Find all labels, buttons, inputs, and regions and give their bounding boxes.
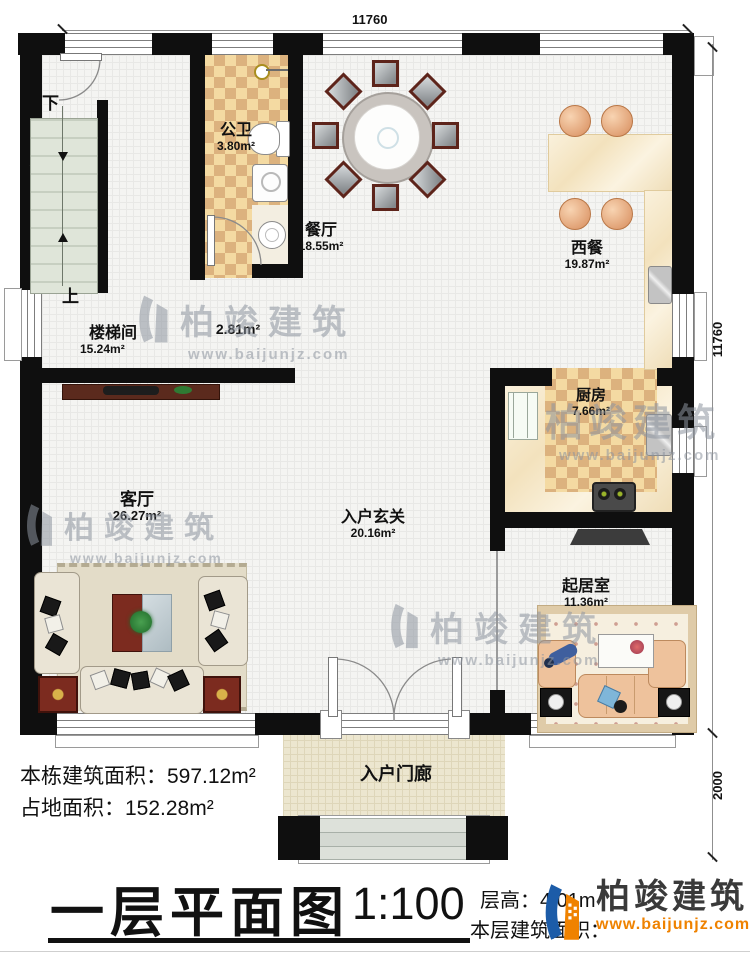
pedestal-sink-basin xyxy=(265,228,279,242)
side-table xyxy=(38,676,78,713)
stair-arrow-up xyxy=(58,228,68,242)
lamp xyxy=(548,694,564,710)
flower-decor xyxy=(630,640,644,654)
dining-chair xyxy=(312,122,339,149)
kitchen-cabinet-line xyxy=(527,392,528,438)
watermark-text: 柏竣建筑 xyxy=(430,602,606,651)
washing-machine-drum xyxy=(261,172,281,192)
cushion xyxy=(131,671,151,691)
plan-scale: 1:100 xyxy=(352,878,465,930)
sitting-coffee-table xyxy=(598,634,654,668)
bar-stool xyxy=(601,198,633,230)
room-area: 18.55m² xyxy=(288,240,354,253)
room-name: 公卫 xyxy=(205,122,267,140)
room-name: 起居室 xyxy=(550,578,622,596)
watermark-text: 柏竣建筑 xyxy=(180,295,356,344)
watermark-url: www.baijunjz.com xyxy=(438,652,606,669)
room-name: 西餐 xyxy=(556,240,618,258)
watermark: 柏竣建筑 www.baijunjz.com xyxy=(136,292,356,363)
watermark: 柏竣建筑 www.baijunjz.com xyxy=(545,392,721,464)
sofa-seam xyxy=(634,676,635,714)
dining-table-center xyxy=(377,127,399,149)
watermark-logo-icon xyxy=(136,292,172,346)
stove-burner xyxy=(614,488,626,500)
watermark-url: www.baijunjz.com xyxy=(188,346,356,363)
room-label-porch: 入户门廊 xyxy=(348,764,444,784)
dimension-right-porch: 2000 xyxy=(710,771,725,800)
porch-column xyxy=(466,816,508,860)
porch-step xyxy=(316,832,472,847)
sheet-divider-line xyxy=(0,951,750,952)
brand-url: www.baijunjz.com xyxy=(596,916,750,934)
porch-step xyxy=(316,846,472,860)
water-valve-icon xyxy=(254,64,270,80)
person-head xyxy=(614,700,627,713)
room-name: 餐厅 xyxy=(288,222,354,240)
watermark-url: www.baijunjz.com xyxy=(70,550,224,566)
staircase xyxy=(30,118,98,294)
porch-step xyxy=(316,818,472,833)
dimension-right-main: 11760 xyxy=(710,322,725,357)
watermark-url: www.baijunjz.com xyxy=(559,447,721,464)
brand-name: 柏竣建筑 xyxy=(596,880,750,914)
watermark-text: 柏竣建筑 xyxy=(545,392,721,447)
watermark-logo-icon xyxy=(388,600,422,652)
dimension-top: 11760 xyxy=(352,12,387,27)
bar-sink-icon xyxy=(648,266,672,304)
room-label-west-dining: 西餐 19.87m² xyxy=(556,240,618,271)
living-room-tv xyxy=(103,386,159,395)
room-label-bathroom: 公卫 3.80m² xyxy=(205,122,267,153)
watermark-text: 柏竣建筑 xyxy=(64,503,224,547)
bathroom-door-leaf xyxy=(207,215,215,266)
brand-logo: 柏竣建筑 www.baijunjz.com xyxy=(534,880,750,944)
porch-column xyxy=(278,816,320,860)
stair-arrow-down xyxy=(58,152,68,166)
room-label-dining: 餐厅 18.55m² xyxy=(288,222,354,253)
building-area-text: 本栋建筑面积：597.12m² xyxy=(20,760,256,790)
stair-centerline xyxy=(62,106,63,286)
room-label-foyer: 入户玄关 20.16m² xyxy=(328,509,418,540)
room-area: 3.80m² xyxy=(205,140,267,153)
tv-cabinet-plant xyxy=(174,386,192,394)
plan-title: 一层平面图 xyxy=(50,868,350,947)
dimension-line-right xyxy=(712,44,713,735)
watermark-logo-icon xyxy=(24,500,56,550)
floor-plan-sheet: 下 上 xyxy=(0,0,750,959)
lamp xyxy=(666,694,682,710)
title-underline xyxy=(48,938,470,943)
kitchen-cabinet-line xyxy=(513,392,514,438)
bar-stool xyxy=(559,198,591,230)
brand-logo-icon xyxy=(534,880,592,944)
sitting-room-tv xyxy=(570,529,650,545)
dining-chair xyxy=(372,184,399,211)
dining-chair xyxy=(372,60,399,87)
footprint-area-text: 占地面积：152.28m² xyxy=(20,792,214,822)
water-pipe xyxy=(266,69,288,71)
dimension-line-top xyxy=(62,30,688,31)
room-area: 20.16m² xyxy=(328,527,418,540)
room-name: 入户玄关 xyxy=(328,509,418,527)
stove-burner xyxy=(598,488,610,500)
stair-door-leaf xyxy=(60,53,102,61)
room-area: 19.87m² xyxy=(556,258,618,271)
dining-chair xyxy=(432,122,459,149)
stair-up-label: 上 xyxy=(62,287,79,306)
entry-door-leaf-left xyxy=(328,657,338,717)
watermark: 柏竣建筑 www.baijunjz.com xyxy=(24,500,224,566)
bar-stool xyxy=(559,105,591,137)
bar-stool xyxy=(601,105,633,137)
stair-down-label: 下 xyxy=(42,94,59,113)
side-table xyxy=(203,676,241,713)
table-plant xyxy=(130,611,152,633)
watermark: 柏竣建筑 www.baijunjz.com xyxy=(388,600,606,669)
